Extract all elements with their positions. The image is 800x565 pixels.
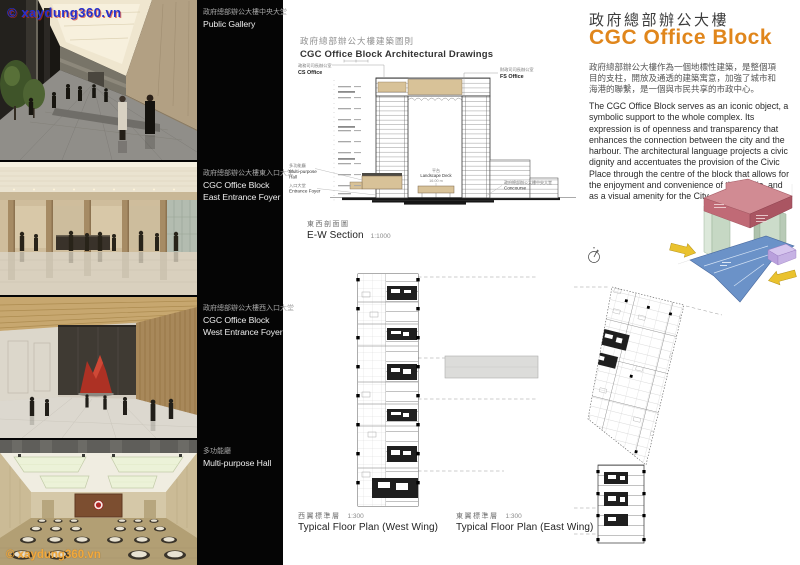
public-gallery-photo: [0, 0, 197, 160]
cs-office-label-zh: 政務司司長辦公室: [298, 62, 332, 69]
west-plan-caption: 西翼標準層1:300 Typical Floor Plan (West Wing…: [298, 511, 438, 533]
svg-text:Multi-purpose: Multi-purpose: [289, 169, 317, 174]
north-arrow-icon: [589, 247, 600, 263]
east-foyer-photo: [0, 162, 197, 295]
fs-office-label-zh: 財政司司長辦公室: [500, 66, 534, 73]
project-title-en: CGC Office Block: [589, 26, 772, 50]
deck-label-en: Landscape Deck: [420, 173, 452, 178]
east-access-arrow-icon: [767, 267, 798, 288]
hall-label-zh: 多功能廳: [289, 162, 307, 169]
svg-text:Hall: Hall: [289, 175, 297, 180]
photo-column: 政府總部辦公大樓中央大堂 Public Gallery 政府總部辦公大樓東入口大…: [0, 0, 283, 565]
label-west-foyer: 政府總部辦公大樓西入口大堂 CGC Office Block West Entr…: [203, 304, 283, 338]
east-plan-caption: 東翼標準層1:300 Typical Floor Plan (East Wing…: [456, 511, 594, 533]
fs-office-label-en: FS Office: [500, 74, 524, 80]
deck-level: 16.00 m: [429, 179, 443, 183]
west-foyer-photo: [0, 297, 197, 438]
label-public-gallery: 政府總部辦公大樓中央大堂 Public Gallery: [203, 8, 283, 31]
emblem-icon: [94, 500, 103, 509]
label-en: Public Gallery: [203, 19, 283, 30]
multipurpose-hall-photo: [0, 440, 197, 565]
ew-section-drawing: 政務司司長辦公室 CS Office 財政司司長辦公室 FS Office 多功…: [288, 56, 584, 216]
watermark-bottom: © xaydung360.vn: [6, 549, 101, 561]
section-caption: 東西剖面圖 E-W Section1:1000: [307, 219, 391, 241]
label-east-foyer: 政府總部辦公大樓東入口大堂 CGC Office Block East Entr…: [203, 169, 283, 203]
foyer-label-en: Entrance Foyer: [289, 189, 321, 194]
concourse-label-zh: 政府總部辦公大樓中央大堂: [504, 179, 552, 185]
massing-diagram: [656, 178, 800, 304]
west-access-arrow-icon: [669, 240, 698, 260]
cs-office-label-en: CS Office: [298, 70, 322, 76]
label-multipurpose-hall: 多功能廳 Multi-purpose Hall: [203, 447, 283, 470]
label-zh: 政府總部辦公大樓中央大堂: [203, 8, 283, 17]
description-zh: 政府總部辦公大樓作為一個地標性建築，是整個項目的支柱，開放及通透的建築寓意，加強…: [589, 62, 777, 96]
west-wing-plan: [354, 272, 540, 508]
watermark-top: © xaydung360.vn: [7, 5, 122, 20]
presentation-board: 政府總部辦公大樓中央大堂 Public Gallery 政府總部辦公大樓東入口大…: [0, 0, 800, 565]
concourse-label-en: Concourse: [504, 186, 527, 191]
